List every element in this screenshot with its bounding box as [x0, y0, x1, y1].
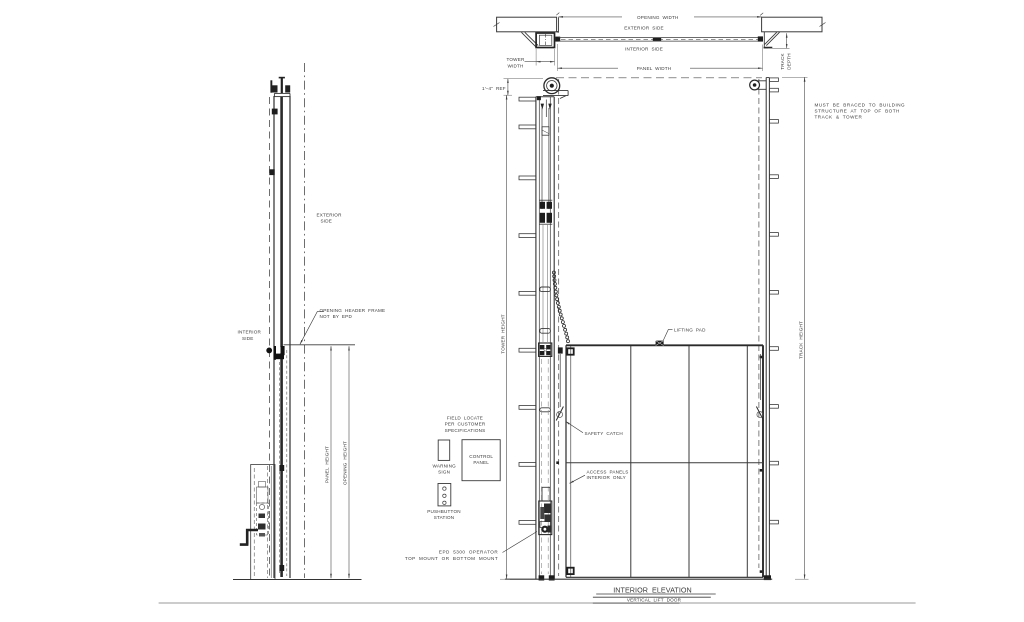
svg-text:LIFTING PAD: LIFTING PAD [674, 327, 706, 332]
svg-text:INTERIOR ONLY: INTERIOR ONLY [587, 475, 626, 480]
svg-text:TOWER HEIGHT: TOWER HEIGHT [500, 314, 505, 353]
svg-text:SPECIFICATIONS: SPECIFICATIONS [445, 428, 486, 433]
svg-text:INTERIOR: INTERIOR [238, 330, 262, 335]
svg-text:TRACK & TOWER: TRACK & TOWER [815, 115, 863, 120]
svg-text:SIDE: SIDE [242, 336, 254, 341]
svg-text:TOP MOUNT OR BOTTOM MOUNT: TOP MOUNT OR BOTTOM MOUNT [405, 556, 498, 561]
svg-text:VERTICAL LIFT DOOR: VERTICAL LIFT DOOR [627, 598, 682, 603]
svg-text:STRUCTURE AT TOP OF BOTH: STRUCTURE AT TOP OF BOTH [815, 108, 900, 113]
svg-text:EPD 5300 OPERATOR: EPD 5300 OPERATOR [439, 549, 498, 554]
svg-text:WIDTH: WIDTH [507, 63, 523, 68]
svg-text:EXTERIOR: EXTERIOR [317, 212, 343, 217]
svg-text:EXTERIOR SIDE: EXTERIOR SIDE [624, 26, 663, 31]
svg-text:DEPTH: DEPTH [787, 53, 792, 70]
svg-text:PANEL: PANEL [473, 460, 489, 465]
svg-text:PER CUSTOMER: PER CUSTOMER [445, 422, 486, 427]
svg-text:WARNING: WARNING [432, 464, 456, 469]
svg-text:OPENING HEIGHT: OPENING HEIGHT [343, 441, 348, 485]
svg-text:ACCESS PANELS: ACCESS PANELS [587, 469, 629, 474]
svg-text:TRACK HEIGHT: TRACK HEIGHT [798, 321, 803, 359]
svg-text:INTERIOR SIDE: INTERIOR SIDE [625, 47, 663, 52]
svg-text:PUSHBUTTON: PUSHBUTTON [427, 509, 461, 514]
svg-text:PANEL WIDTH: PANEL WIDTH [637, 66, 671, 71]
svg-text:SIDE: SIDE [321, 219, 333, 224]
svg-text:1'–4" REF: 1'–4" REF [482, 86, 506, 91]
svg-text:INTERIOR ELEVATION: INTERIOR ELEVATION [613, 585, 692, 594]
svg-text:SAFETY CATCH: SAFETY CATCH [585, 431, 623, 436]
svg-text:NOT BY EPD: NOT BY EPD [320, 314, 353, 319]
svg-text:TOWER: TOWER [506, 57, 524, 62]
svg-text:MUST BE BRACED TO BUILDING: MUST BE BRACED TO BUILDING [815, 102, 906, 107]
svg-text:OPENING WIDTH: OPENING WIDTH [637, 15, 679, 20]
svg-text:STATION: STATION [434, 515, 455, 520]
svg-text:TRACK: TRACK [780, 52, 785, 69]
svg-text:OPENING HEADER FRAME: OPENING HEADER FRAME [320, 308, 386, 313]
svg-text:CONTROL: CONTROL [469, 454, 493, 459]
svg-text:PANEL HEIGHT: PANEL HEIGHT [325, 446, 330, 483]
svg-text:SIGN: SIGN [438, 470, 450, 475]
svg-text:FIELD LOCATE: FIELD LOCATE [447, 415, 483, 420]
